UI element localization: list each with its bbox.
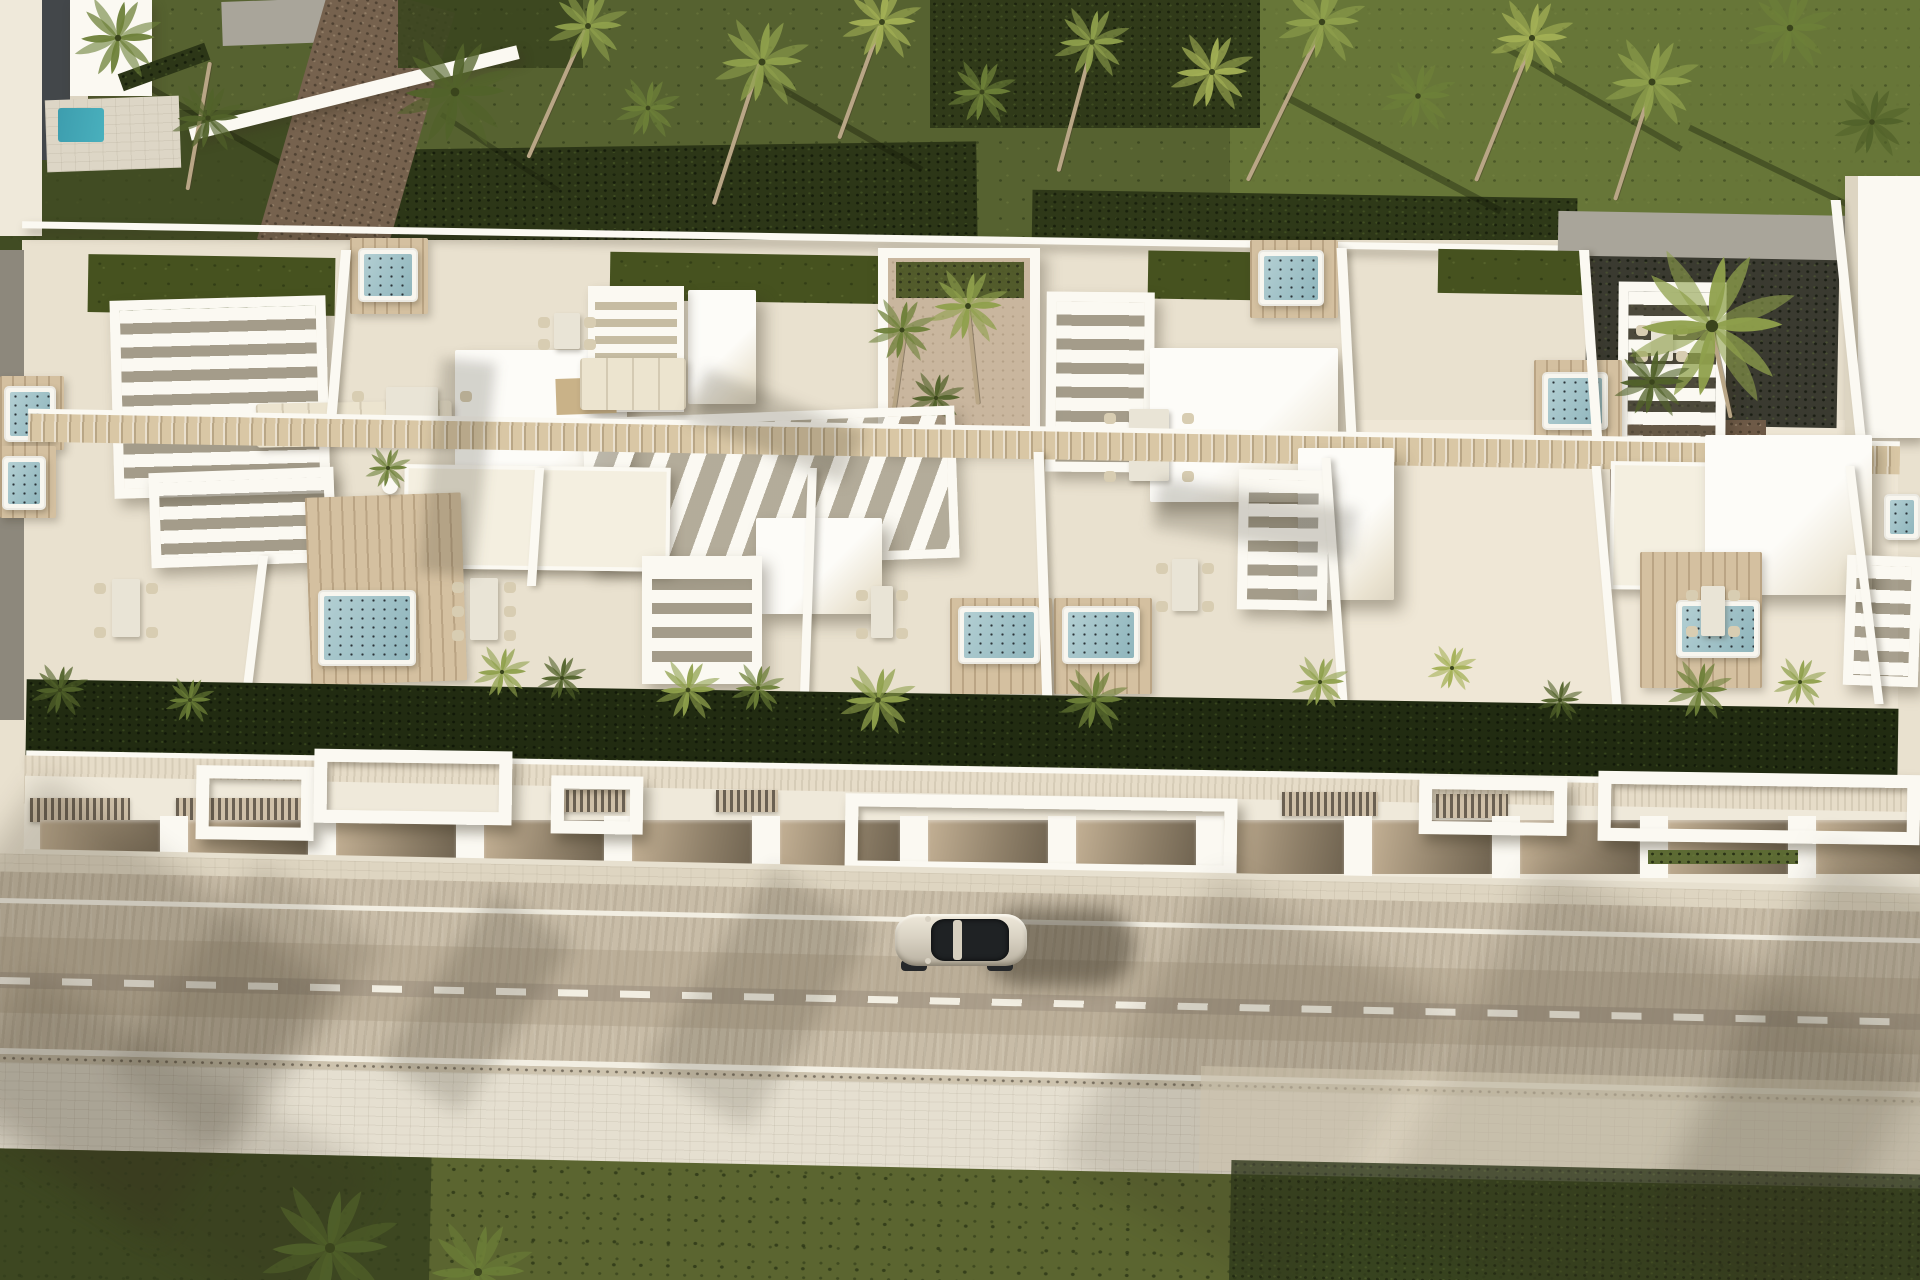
jacuzzi-water [1890, 500, 1914, 534]
chair [856, 628, 868, 639]
chair [504, 630, 516, 641]
palm-tree [1488, 0, 1576, 82]
balcony-frame [313, 749, 512, 826]
chair [1156, 601, 1168, 612]
chair [896, 590, 908, 601]
table-top [1172, 559, 1198, 612]
palm-tree [840, 0, 924, 64]
palm-tree [393, 30, 517, 154]
stair-pergola [1843, 555, 1920, 688]
balcony-plants [1648, 850, 1798, 864]
hedge-palm [654, 656, 722, 724]
hedge-palm [1536, 676, 1584, 724]
balcony-frame [1419, 776, 1568, 836]
hedge-palm [1772, 654, 1828, 710]
chair [584, 317, 596, 328]
table-top [871, 586, 894, 637]
louver-shutter [1282, 792, 1378, 816]
chair [1686, 590, 1698, 601]
jacuzzi-water [1264, 256, 1318, 300]
roof-lawn-strip [1438, 249, 1587, 295]
hedge-palm [536, 652, 588, 704]
table-top [112, 579, 140, 637]
palm-tree [170, 80, 246, 156]
palm-tree [1378, 56, 1458, 136]
terrace-palm [364, 444, 412, 492]
chair [856, 590, 868, 601]
jacuzzi-water [364, 254, 412, 296]
chair [1728, 626, 1740, 637]
jacuzzi [358, 248, 418, 302]
jacuzzi [1062, 606, 1140, 664]
car-mirror [925, 916, 931, 922]
chair [94, 627, 106, 638]
chair [1686, 626, 1698, 637]
chair [1104, 471, 1116, 482]
bottom-palm-fronds [420, 1214, 536, 1280]
car-roof-bar [953, 920, 962, 960]
table-top [554, 313, 580, 350]
balcony-frame [195, 765, 314, 841]
hedge-palm [1666, 656, 1734, 724]
palm-tree [712, 12, 812, 112]
palm-tree [1832, 82, 1912, 162]
palm-tree [1168, 28, 1256, 116]
chair [452, 606, 464, 617]
chair [1202, 563, 1214, 574]
court-palm [1612, 342, 1692, 422]
jacuzzi [2, 456, 46, 510]
chair [584, 339, 596, 350]
silver-car [895, 910, 1027, 974]
outdoor-sofa [580, 358, 686, 410]
jacuzzi-water [8, 462, 40, 504]
bottom-palm-fronds [258, 1176, 402, 1280]
chair [452, 582, 464, 593]
palm-tree [1052, 2, 1132, 82]
louver-shutter [716, 790, 778, 812]
chair [504, 582, 516, 593]
hedge-palm [1058, 664, 1130, 736]
hedge-palm [164, 674, 216, 726]
jacuzzi [1884, 494, 1920, 540]
palm-tree [614, 74, 682, 142]
balcony-frame [1598, 771, 1920, 845]
chair [146, 583, 158, 594]
palm-tree [1744, 0, 1836, 74]
table-top [470, 578, 498, 640]
jacuzzi-water [324, 596, 410, 660]
courtyard-palm [926, 264, 1010, 348]
hedge-palm [30, 660, 90, 720]
balcony-frame [551, 775, 644, 834]
chair [1182, 471, 1194, 482]
chair [538, 317, 550, 328]
jacuzzi-water [1068, 612, 1134, 658]
neighbor-wall [0, 0, 42, 236]
chair [1728, 590, 1740, 601]
jacuzzi [318, 590, 416, 666]
chair [1182, 413, 1194, 424]
palm-tree [1276, 0, 1368, 68]
facade-pillar [1344, 816, 1372, 878]
car-canopy [931, 919, 1009, 961]
jacuzzi-water [964, 612, 1034, 658]
jacuzzi [1258, 250, 1324, 306]
chair [146, 627, 158, 638]
chair [1104, 413, 1116, 424]
hedge-palm [730, 660, 786, 716]
hedge-palm [1426, 642, 1478, 694]
chair [538, 339, 550, 350]
chair [452, 630, 464, 641]
chair [94, 583, 106, 594]
chair [1156, 563, 1168, 574]
hedge-palm [1290, 652, 1350, 712]
car-mirror [925, 958, 931, 964]
palm-tree [1602, 32, 1702, 132]
chair [352, 391, 364, 402]
jacuzzi [958, 606, 1040, 664]
palm-tree [946, 56, 1018, 128]
aerial-render-scene [0, 0, 1920, 1280]
chair [1202, 601, 1214, 612]
chair [896, 628, 908, 639]
neighbor-pool [58, 108, 104, 142]
palm-tree [72, 0, 164, 84]
hedge-palm [472, 642, 532, 702]
chair [504, 606, 516, 617]
glass-pane [1224, 820, 1344, 874]
table-top [1701, 586, 1725, 636]
hedge-palm [838, 660, 918, 740]
palm-tree [546, 0, 630, 68]
